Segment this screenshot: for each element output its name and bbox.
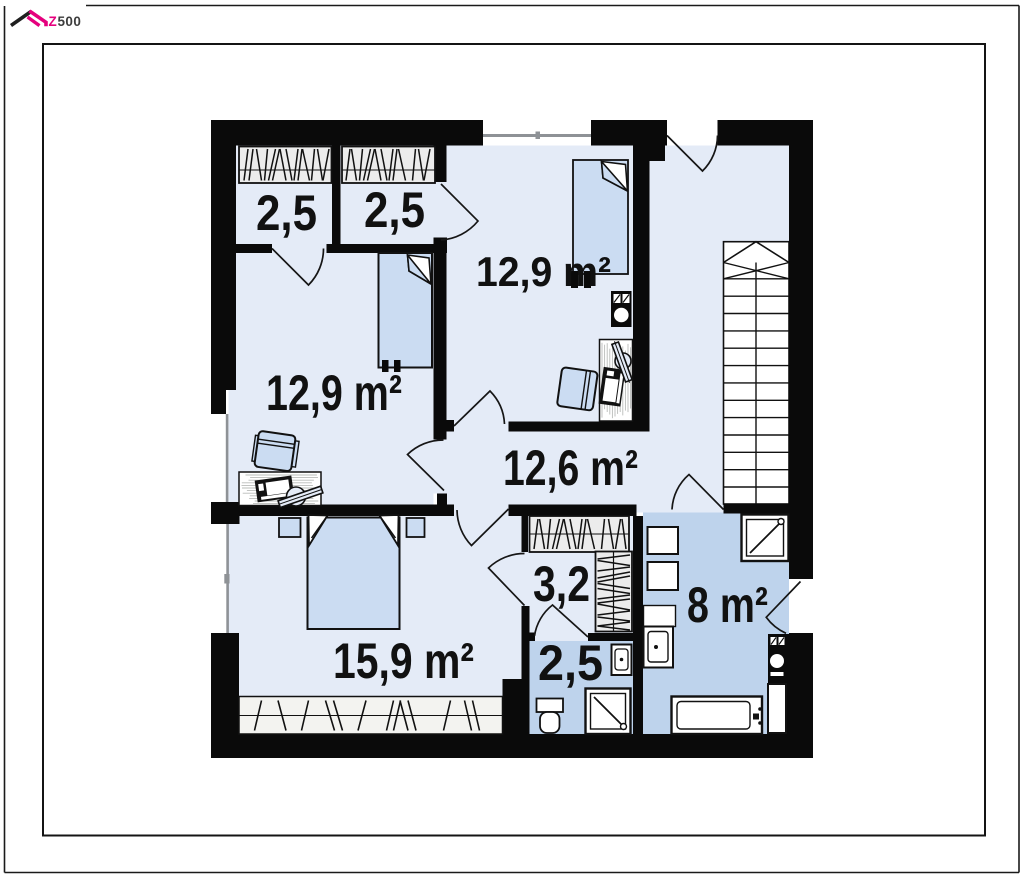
svg-text:2,5: 2,5 <box>538 635 603 691</box>
svg-text:15,9 m²: 15,9 m² <box>333 633 474 689</box>
svg-text:Z: Z <box>49 14 58 29</box>
svg-text:2,5: 2,5 <box>364 182 425 238</box>
svg-text:3,2: 3,2 <box>533 556 590 612</box>
svg-text:12,9 m²: 12,9 m² <box>266 365 402 421</box>
svg-text:2,5: 2,5 <box>256 185 317 241</box>
svg-text:12,6 m²: 12,6 m² <box>503 440 638 496</box>
svg-text:500: 500 <box>58 14 82 29</box>
svg-text:8 m²: 8 m² <box>687 577 768 633</box>
svg-text:12,9 m²: 12,9 m² <box>476 248 611 295</box>
